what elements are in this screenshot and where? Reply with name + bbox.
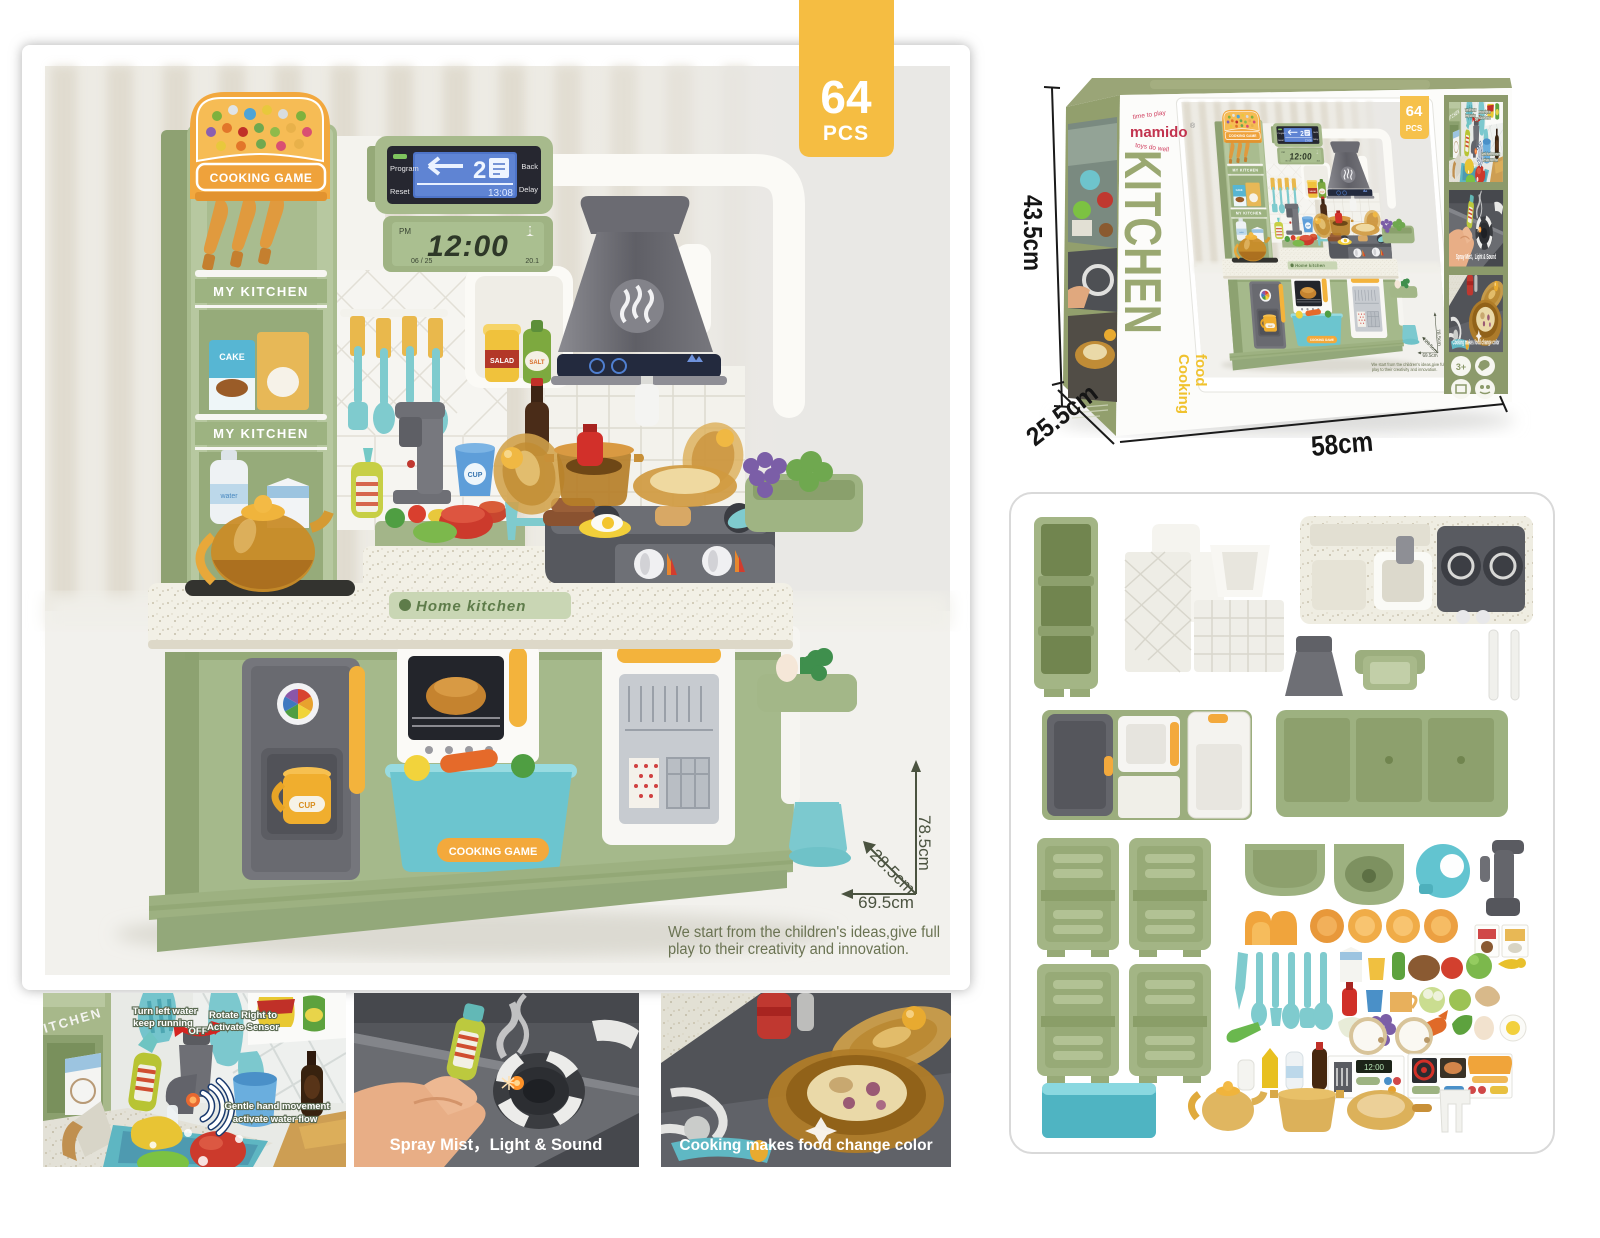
svg-text:Cooking: Cooking: [1175, 354, 1192, 414]
svg-text:PCS: PCS: [823, 122, 869, 145]
svg-text:PCS: PCS: [1406, 124, 1423, 133]
svg-text:mamido: mamido: [1130, 124, 1188, 141]
svg-text:food: food: [1192, 354, 1209, 386]
svg-text:64: 64: [1406, 103, 1423, 120]
svg-text:43.5cm: 43.5cm: [1018, 195, 1048, 271]
svg-text:KITCHEN: KITCHEN: [1114, 150, 1172, 335]
svg-text:12:00: 12:00: [1364, 1063, 1385, 1072]
svg-text:®: ®: [1190, 122, 1196, 130]
svg-text:58cm: 58cm: [1310, 426, 1374, 462]
svg-text:3+: 3+: [1456, 362, 1466, 372]
svg-text:64: 64: [820, 71, 872, 123]
